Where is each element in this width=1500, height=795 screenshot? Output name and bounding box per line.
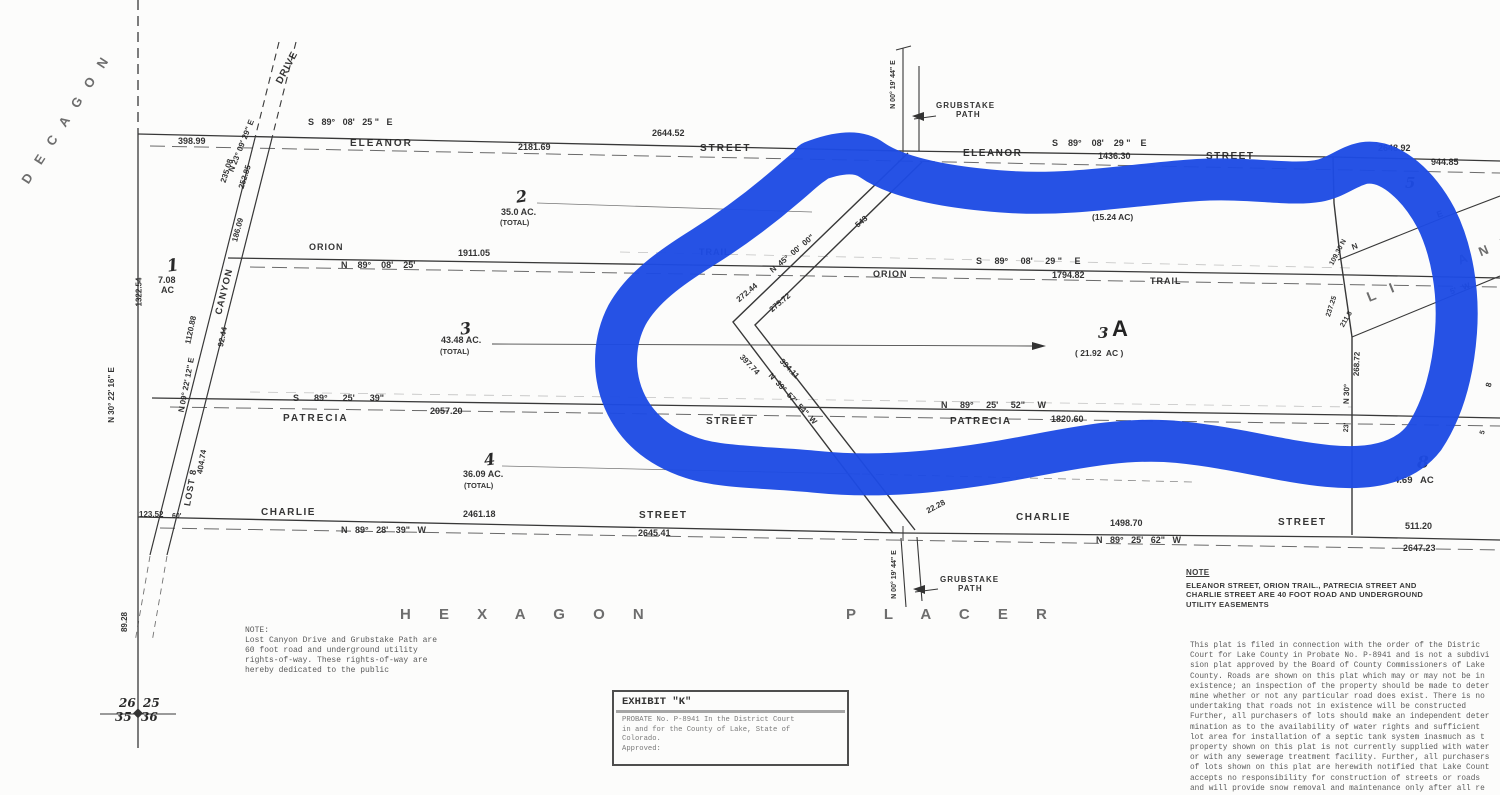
- plat-map-scan: D E C A G O NP L A C E RH E X A G O NP L…: [0, 0, 1500, 795]
- chevron-dist-394: 394.11: [778, 358, 800, 381]
- lot3-acreage: 43.48 AC.: [441, 336, 481, 345]
- charlie-name-right: CHARLIE: [1016, 513, 1071, 523]
- note-line: rights-of-way. These rights-of-way are: [245, 656, 437, 666]
- lot2-total: (TOTAL): [500, 219, 529, 227]
- patrecia-bearing-right: N 89° 25' 52" W: [941, 401, 1046, 410]
- charlie-dist-511: 511.20: [1405, 522, 1432, 531]
- note-line: sion plat approved by the Board of Count…: [1190, 661, 1500, 671]
- section-25: 25: [143, 697, 160, 709]
- chevron-dist-272: 272.44: [735, 282, 759, 304]
- grubstake-path-top-label1: GRUBSTAKE: [936, 102, 995, 110]
- exhibit-k-rule: [616, 710, 845, 713]
- annie-line-5w: 5' W: [1449, 282, 1471, 297]
- note-line: This plat is filed in connection with th…: [1190, 641, 1500, 651]
- grubstake-path-top-label2: PATH: [956, 111, 981, 119]
- lot3a-number-3: 3: [1098, 326, 1108, 341]
- orion-trail-left: TRAIL: [699, 248, 731, 257]
- lost-canyon-dist-252: 252.85: [238, 164, 253, 190]
- eleanor-bearing-left: S 89° 08' 25 " E: [308, 118, 393, 127]
- eleanor-street-left: STREET: [700, 144, 751, 154]
- west-dist-1322: 1322.54: [135, 278, 143, 307]
- section-26: 26: [119, 697, 136, 709]
- east-boundary-dist-109: 109.30 N: [1328, 238, 1348, 266]
- eleanor-dist-944: 944.85: [1431, 158, 1459, 167]
- note-street-easements-title: NOTE: [1186, 568, 1423, 578]
- annie-line-e: E: [1436, 209, 1445, 220]
- annie-line-n: N: [1351, 242, 1359, 251]
- hexagon-claim-name: H E X A G O N: [400, 607, 656, 622]
- patrecia-bearing-left: S 89° 25' 39": [293, 394, 384, 403]
- lot3a-acreage: ( 21.92 AC ): [1075, 349, 1123, 358]
- charlie-dist-2645: 2645.41: [638, 529, 671, 538]
- eleanor-bearing-right: S 89° 08' 29 " E: [1052, 139, 1147, 148]
- note-line: or with any sewerage treatment facility.…: [1190, 753, 1500, 763]
- note-line: property shown on this plat is not curre…: [1190, 743, 1500, 753]
- note-line: undertaking that roads not in existence …: [1190, 702, 1500, 712]
- east-boundary-dist-268: 268.72: [1353, 352, 1362, 377]
- chevron-dist-275: 275.72: [768, 292, 792, 314]
- eleanor-street-right: STREET: [1206, 152, 1254, 162]
- charlie-bearing-right: N 89° 25' 62" W: [1096, 536, 1181, 545]
- patrecia-dist-1820: 1820.60: [1051, 415, 1084, 424]
- chevron-bearing-upper: N 45° 00' 00": [769, 233, 816, 274]
- note-line: and will provide snow removal and mainte…: [1190, 784, 1500, 794]
- eleanor-name-right: ELEANOR: [963, 149, 1022, 159]
- grubstake-dist-2228: 22.28: [925, 499, 946, 515]
- lost-canyon-label: CANYON: [214, 268, 235, 316]
- orion-dist-1911: 1911.05: [458, 249, 490, 258]
- eleanor-dist-2644: 2644.52: [652, 129, 685, 138]
- note-line: of lots shown on this plat are herewith …: [1190, 763, 1500, 773]
- patrecia-name-right: PATRECIA: [950, 417, 1012, 427]
- lost-canyon-dist-123: 123.52: [139, 511, 163, 519]
- exhibit-k-body: PROBATE No. P-8941 In the District Court…: [614, 713, 847, 754]
- patrecia-name-left: PATRECIA: [283, 414, 349, 424]
- note-line: lot area for installation of a septic ta…: [1190, 733, 1500, 743]
- eleanor-dist-2181: 2181.69: [518, 143, 551, 152]
- west-bearing: N 30° 22' 16" E: [108, 367, 116, 423]
- chevron-dist-543: 543: [854, 215, 869, 230]
- note-line: CHARLIE STREET ARE 40 FOOT ROAD AND UNDE…: [1186, 590, 1423, 600]
- lot1-number: 1: [166, 257, 180, 275]
- charlie-street-left: STREET: [639, 511, 687, 521]
- lot5-number: 5: [1405, 176, 1415, 191]
- note-line: Lost Canyon Drive and Grubstake Path are: [245, 636, 437, 646]
- note-street-easements: NOTE ELEANOR STREET, ORION TRAIL., PATRE…: [1186, 568, 1423, 609]
- east-boundary-bearing-23: 23': [1343, 423, 1350, 433]
- note-line: PROBATE No. P-8941 In the District Court: [622, 716, 847, 726]
- lot2-number: 2: [515, 188, 528, 205]
- decagon-claim-name: D E C A G O N: [19, 51, 113, 186]
- note-line: hereby dedicated to the public: [245, 666, 437, 676]
- note-line: mination as to the availability of water…: [1190, 723, 1500, 733]
- corner-dist-8928: 89.28: [121, 612, 129, 632]
- exhibit-k-stamp: EXHIBIT "K" PROBATE No. P-8941 In the Di…: [612, 690, 849, 766]
- charlie-dist-2647: 2647.23: [1403, 544, 1436, 553]
- note-line: in and for the County of Lake, State of: [622, 726, 847, 736]
- lost-canyon-drive-label: DRIVE: [275, 50, 301, 86]
- charlie-street-right: STREET: [1278, 518, 1326, 528]
- charlie-dist-1498: 1498.70: [1110, 519, 1143, 528]
- east-boundary-dist-237: 237.25: [1325, 295, 1338, 318]
- patrecia-street-left: STREET: [706, 417, 754, 427]
- east-boundary-bearing-n30: N 30°: [1343, 384, 1352, 404]
- lot6-acreage: (15.24 AC): [1092, 213, 1133, 222]
- note-line: accepts no responsibility for constructi…: [1190, 774, 1500, 784]
- orion-bearing-left: N 89° 08' 25': [341, 261, 415, 270]
- orion-bearing-right: S 89° 08' 29 " E: [976, 257, 1081, 266]
- note-line: County. Roads are shown on this plat whi…: [1190, 672, 1500, 682]
- patrecia-dist-2057: 2057.20: [430, 407, 463, 416]
- lot3-total: (TOTAL): [440, 348, 469, 356]
- east-boundary-dist-211: 211.8: [1339, 310, 1354, 328]
- note-dedication: NOTE:Lost Canyon Drive and Grubstake Pat…: [245, 626, 437, 676]
- note-line: UTILITY EASEMENTS: [1186, 600, 1423, 610]
- note-line: mine whether or not any particular road …: [1190, 692, 1500, 702]
- eleanor-dist-2648: 2648.92: [1378, 144, 1411, 153]
- note-line: Colorado.: [622, 735, 847, 745]
- lot3a-number-A: A: [1112, 318, 1128, 340]
- grubstake-top-bearing: N 00° 19' 44" E: [890, 60, 897, 109]
- lost-canyon-bearing-lower: N 09° 22' 12" E: [178, 357, 196, 413]
- orion-name-right: ORION: [873, 270, 908, 279]
- placer-claim-name-top: P L A C E R: [1293, 0, 1478, 3]
- note-line: Approved:: [622, 745, 847, 755]
- grubstake-path-bottom-label1: GRUBSTAKE: [940, 576, 999, 584]
- note-line: 60 foot road and underground utility: [245, 646, 437, 656]
- note-line: NOTE:: [245, 626, 437, 636]
- lot4-total: (TOTAL): [464, 482, 493, 490]
- section-36: 36: [141, 711, 158, 723]
- east-edge-8: 8: [1485, 382, 1494, 388]
- grubstake-path-bottom-label2: PATH: [958, 585, 983, 593]
- orion-name-left: ORION: [309, 243, 344, 252]
- lot4-acreage: 36.09 AC.: [463, 470, 503, 479]
- lot4-number: 4: [483, 451, 496, 468]
- legal-paragraph: This plat is filed in connection with th…: [1190, 641, 1500, 795]
- little-annie-ANN: A N N: [1456, 232, 1500, 266]
- section-35: 35: [115, 711, 132, 723]
- eleanor-name-left: ELEANOR: [350, 139, 413, 149]
- placer-claim-name-bottom: P L A C E R: [846, 607, 1059, 622]
- east-edge-5: 5: [1479, 430, 1487, 436]
- lost-label: LOST 8: [183, 468, 198, 507]
- lost-canyon-width-60: 60': [172, 513, 181, 520]
- chevron-bearing-lower: N 39° 57' 54" W: [767, 372, 818, 426]
- lost-canyon-dist-92: 92.44: [217, 326, 229, 347]
- lot8-number: 8: [1417, 455, 1429, 472]
- lot1-acreage-unit: AC: [161, 286, 174, 295]
- lot2-acreage: 35.0 AC.: [501, 208, 536, 217]
- charlie-name-left: CHARLIE: [261, 508, 316, 518]
- orion-trail-right: TRAIL: [1150, 277, 1182, 286]
- note-line: Court for Lake County in Probate No. P-8…: [1190, 651, 1500, 661]
- charlie-dist-2461: 2461.18: [463, 510, 496, 519]
- lot1-acreage: 7.08: [158, 276, 176, 285]
- orion-dist-1794: 1794.82: [1052, 271, 1085, 280]
- eleanor-dist-1436: 1436.30: [1098, 152, 1131, 161]
- lost-canyon-dist-1120: 1120.88: [184, 315, 198, 345]
- grubstake-bottom-bearing: N 00° 19' 44" E: [891, 550, 898, 599]
- note-line: ELEANOR STREET, ORION TRAIL., PATRECIA S…: [1186, 581, 1423, 591]
- note-line: existence; an inspection of the property…: [1190, 682, 1500, 692]
- eleanor-dist-398: 398.99: [178, 137, 206, 146]
- little-annie-L-I: L I: [1365, 278, 1402, 304]
- lost-canyon-dist-186: 186.09: [231, 217, 245, 243]
- charlie-bearing-left: N 89° 28' 39" W: [341, 526, 426, 535]
- chevron-dist-397: 397.74: [738, 353, 761, 376]
- note-line: Further, all purchasers of lots should m…: [1190, 712, 1500, 722]
- note-street-easements-body: ELEANOR STREET, ORION TRAIL., PATRECIA S…: [1186, 581, 1423, 610]
- lot8-acreage: 4.69 AC: [1394, 476, 1434, 486]
- exhibit-k-title: EXHIBIT "K": [614, 692, 847, 710]
